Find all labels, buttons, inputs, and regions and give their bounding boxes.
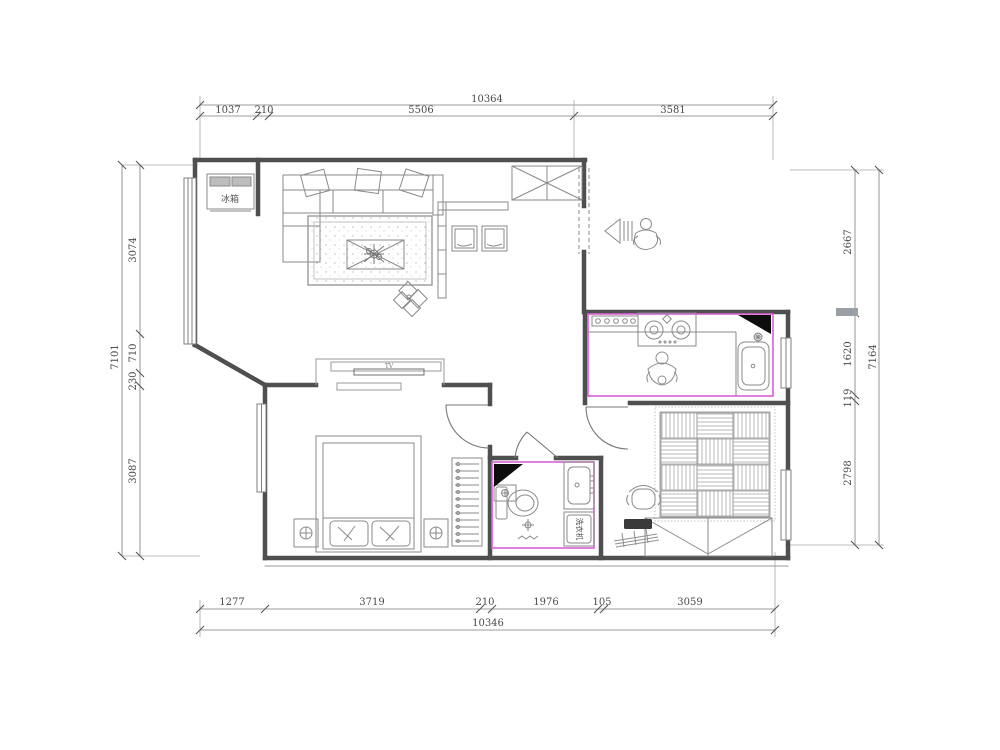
desk-chair [627, 486, 661, 510]
dim-wall-mark [836, 308, 858, 316]
dim-bottom-seg-3: 1976 [533, 597, 558, 608]
toilet [496, 487, 538, 519]
dim-top-seg-2: 5506 [408, 105, 433, 116]
dim-left-seg-2: 230 [128, 371, 139, 390]
bathroom-corner-triangle [494, 464, 523, 487]
dim-left-seg-1: 710 [128, 343, 139, 362]
dim-bottom-seg-1: 3719 [359, 597, 384, 608]
entry-person-icon [634, 219, 661, 250]
dim-bottom-seg-5: 3059 [677, 597, 702, 608]
bed [316, 436, 421, 552]
tatami-mats [655, 407, 775, 521]
floor-plan-page: 1037 210 5506 3581 10364 1277 3719 210 1… [0, 0, 1000, 750]
gas-valve-icon [754, 333, 762, 341]
dim-right-seg-0: 2667 [843, 229, 854, 254]
living-window [184, 178, 196, 344]
tv-label: TV [385, 363, 394, 370]
slat-mat [614, 529, 659, 547]
spice-rack [592, 316, 638, 326]
floor-plan-drawing: 1037 210 5506 3581 10364 1277 3719 210 1… [0, 0, 1000, 750]
tatami-cabinet [645, 518, 772, 556]
dim-top-seg-0: 1037 [215, 105, 240, 116]
dim-left-seg-0: 3074 [128, 237, 139, 262]
dim-right-seg-2: 119 [843, 388, 854, 407]
kitchen-corner-triangle [738, 315, 771, 334]
bedroom-dresser [337, 383, 401, 390]
dim-bottom-seg-2: 210 [475, 597, 494, 608]
entry-arrow-icon [605, 219, 632, 243]
kitchen-person-icon [647, 352, 677, 385]
shoe-cabinet [512, 166, 582, 200]
dim-top-total: 10364 [471, 94, 503, 105]
mat-squiggle [518, 536, 538, 539]
bathroom-door [515, 432, 558, 458]
bedroom-door [446, 405, 489, 448]
dim-bottom-seg-4: 105 [592, 597, 611, 608]
tv-niche [316, 359, 444, 390]
dim-left-total: 7101 [110, 344, 121, 369]
doors [446, 405, 628, 458]
desk-item [624, 519, 652, 529]
dim-right-seg-3: 2798 [843, 460, 854, 485]
bath-vanity [564, 462, 594, 509]
dim-bottom-total: 10346 [472, 618, 504, 629]
stool-2 [482, 226, 507, 251]
dim-bottom-seg-0: 1277 [219, 597, 244, 608]
kitchen-sink [738, 342, 769, 390]
fridge [207, 174, 254, 211]
nightstand-left [294, 519, 318, 547]
washer-label: 洗衣机 [575, 518, 585, 541]
dim-right-total: 7164 [868, 344, 879, 369]
dim-top-seg-1: 210 [254, 105, 273, 116]
gas-stove [638, 313, 696, 346]
kitchen-fittings [588, 313, 769, 396]
kitchen-door [586, 407, 628, 449]
fridge-label: 冰箱 [221, 193, 239, 205]
floor-plant-icon [394, 282, 428, 317]
dim-left-seg-3: 3087 [128, 458, 139, 483]
dim-right-seg-1: 1620 [843, 341, 854, 366]
pillow [372, 521, 410, 546]
dim-top-seg-3: 3581 [660, 105, 685, 116]
wardrobe-rack [452, 458, 482, 546]
nightstand-right [424, 519, 448, 547]
floor-drain-icon [522, 519, 534, 531]
stool-1 [452, 226, 477, 251]
side-counter [438, 202, 508, 298]
